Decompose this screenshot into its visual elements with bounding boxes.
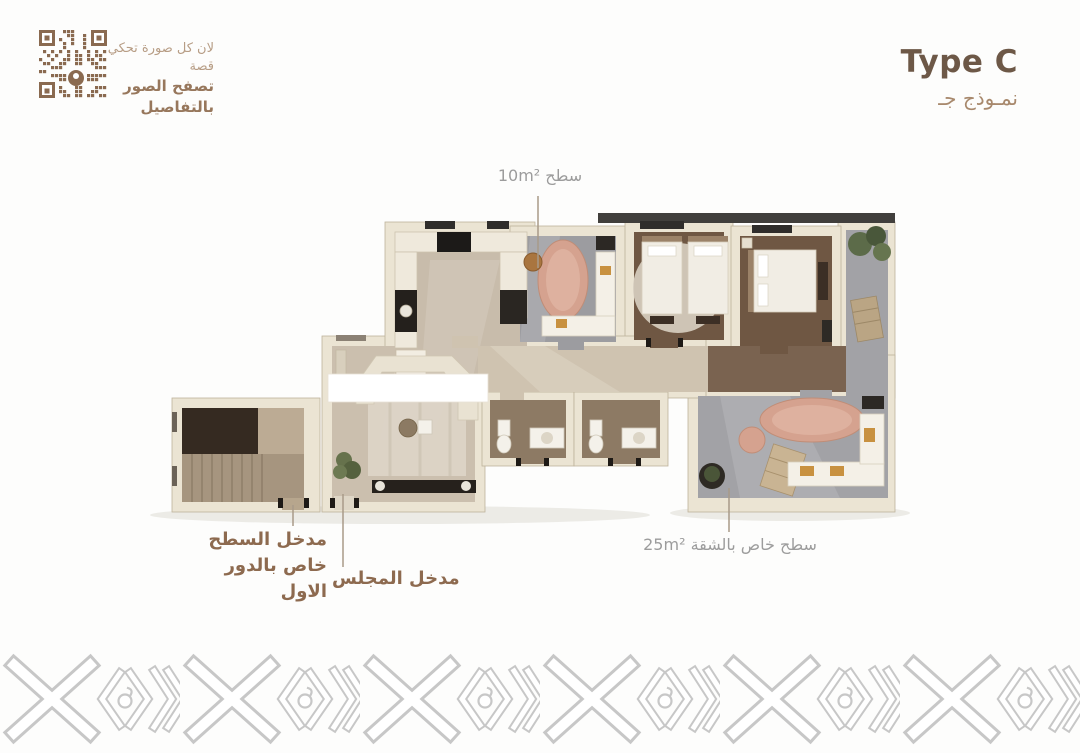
qr-tagline-line1: لان كل صورة تحكي قصة bbox=[98, 40, 214, 76]
terrace25-cushion3 bbox=[864, 428, 875, 442]
qr-tagline-line2: تصفح الصور بالتفاصيل bbox=[98, 76, 214, 118]
label-roof-entrance: مدخل السطح خاص بالدور الاول bbox=[175, 527, 327, 605]
stair-wall-mark1 bbox=[172, 412, 177, 432]
pattern-fill bbox=[0, 645, 1080, 753]
label-majlis-entrance: مدخل المجلس bbox=[332, 566, 492, 592]
terrace25-plant bbox=[704, 466, 720, 482]
opening-majlis-entrance bbox=[334, 496, 354, 510]
majlis-tv-console bbox=[372, 480, 476, 493]
stair-void bbox=[182, 408, 258, 454]
terrace25-round-table bbox=[739, 427, 765, 453]
bath2-toilet-bowl bbox=[589, 435, 603, 453]
stair-treads-floor bbox=[182, 454, 304, 502]
opening-bath2 bbox=[612, 456, 636, 464]
qr-tagline: لان كل صورة تحكي قصة تصفح الصور بالتفاصي… bbox=[98, 40, 214, 118]
majlis-speaker-right bbox=[461, 481, 471, 491]
bath1-basin bbox=[541, 432, 553, 444]
majlis-speaker-left bbox=[375, 481, 385, 491]
terrace10-cushion2 bbox=[556, 319, 567, 328]
sadu-pattern-band bbox=[0, 645, 1080, 753]
bath2-toilet-tank bbox=[590, 420, 602, 436]
jamb bbox=[608, 458, 613, 466]
opening-terrace10 bbox=[558, 340, 584, 350]
label-roof-terrace-10: سطح 10m² bbox=[480, 166, 600, 185]
qr-finder-bl bbox=[39, 82, 55, 98]
bed1-pillow bbox=[648, 246, 676, 256]
bedroom1-window bbox=[640, 221, 684, 229]
terrace25-dark-unit bbox=[862, 396, 884, 409]
qr-finder-tl bbox=[39, 30, 55, 46]
title-block: Type C نمـوذج جـ bbox=[901, 44, 1018, 110]
blank-label-box bbox=[328, 374, 488, 402]
majlis-top-window bbox=[336, 335, 366, 341]
terrace25-rug-inner bbox=[772, 405, 852, 435]
jamb bbox=[544, 458, 549, 466]
terrace10-side-table bbox=[524, 253, 542, 271]
opening-bedroom1 bbox=[650, 338, 678, 348]
master-bed-bench bbox=[818, 262, 828, 300]
terrace25-cushion1 bbox=[800, 466, 814, 476]
master-pillow1 bbox=[758, 255, 768, 277]
bed2-headboard bbox=[688, 236, 728, 242]
bath2-basin bbox=[633, 432, 645, 444]
terrace25-cushion2 bbox=[830, 466, 844, 476]
jamb bbox=[330, 498, 335, 508]
bedroom2-window bbox=[752, 225, 792, 233]
bedroom1-furniture bbox=[633, 236, 728, 333]
majlis-plant-leaf3 bbox=[333, 465, 347, 479]
terrace10-rug-inner bbox=[546, 249, 580, 311]
opening-majlis-hall bbox=[452, 336, 478, 348]
jamb bbox=[636, 458, 641, 466]
opening-bath1 bbox=[520, 456, 544, 464]
page: لان كل صورة تحكي قصة تصفح الصور بالتفاصي… bbox=[0, 0, 1080, 753]
bed2-bench bbox=[696, 316, 720, 324]
jamb bbox=[678, 338, 683, 347]
jamb bbox=[354, 498, 359, 508]
kitchen-stove bbox=[437, 232, 471, 252]
kitchen-sink bbox=[400, 305, 412, 317]
bed2-pillow bbox=[694, 246, 722, 256]
majlis-coffee-table bbox=[399, 419, 417, 437]
stair-landing bbox=[258, 408, 304, 454]
jamb bbox=[646, 338, 651, 347]
opening-bedroom2 bbox=[760, 344, 788, 354]
bedroom2-nightstand bbox=[742, 238, 752, 248]
master-pillow2 bbox=[758, 284, 768, 306]
kitchen-window bbox=[425, 221, 455, 229]
bath1-toilet-bowl bbox=[497, 435, 511, 453]
majlis-tray-table bbox=[418, 420, 432, 434]
stair-wall-mark2 bbox=[172, 466, 177, 486]
terrace10-cabinet bbox=[596, 236, 615, 250]
bed1-headboard bbox=[642, 236, 682, 242]
jamb bbox=[278, 498, 283, 508]
opening-hall-terrace bbox=[800, 390, 832, 398]
jamb bbox=[304, 498, 309, 508]
terrace10-sofa-bottom bbox=[542, 316, 615, 336]
bath1-toilet-tank bbox=[498, 420, 510, 436]
kitchen-appliance-right bbox=[500, 290, 527, 324]
label-roof-entrance-line1: مدخل السطح bbox=[175, 527, 327, 553]
page-subtitle-arabic: نمـوذج جـ bbox=[901, 86, 1018, 110]
opening-kitchen-hall bbox=[500, 386, 524, 400]
label-apartment-terrace-25: سطح خاص بالشقة 25m² bbox=[635, 535, 825, 554]
bed1-bench bbox=[650, 316, 674, 324]
kitchen-window2 bbox=[487, 221, 509, 229]
label-roof-entrance-line2: خاص بالدور الاول bbox=[175, 553, 327, 605]
jamb bbox=[516, 458, 521, 466]
bedroom2-dresser bbox=[822, 320, 832, 342]
terrace10-cushion1 bbox=[600, 266, 611, 275]
page-title: Type C bbox=[901, 44, 1018, 80]
master-bed-headboard bbox=[748, 250, 754, 312]
